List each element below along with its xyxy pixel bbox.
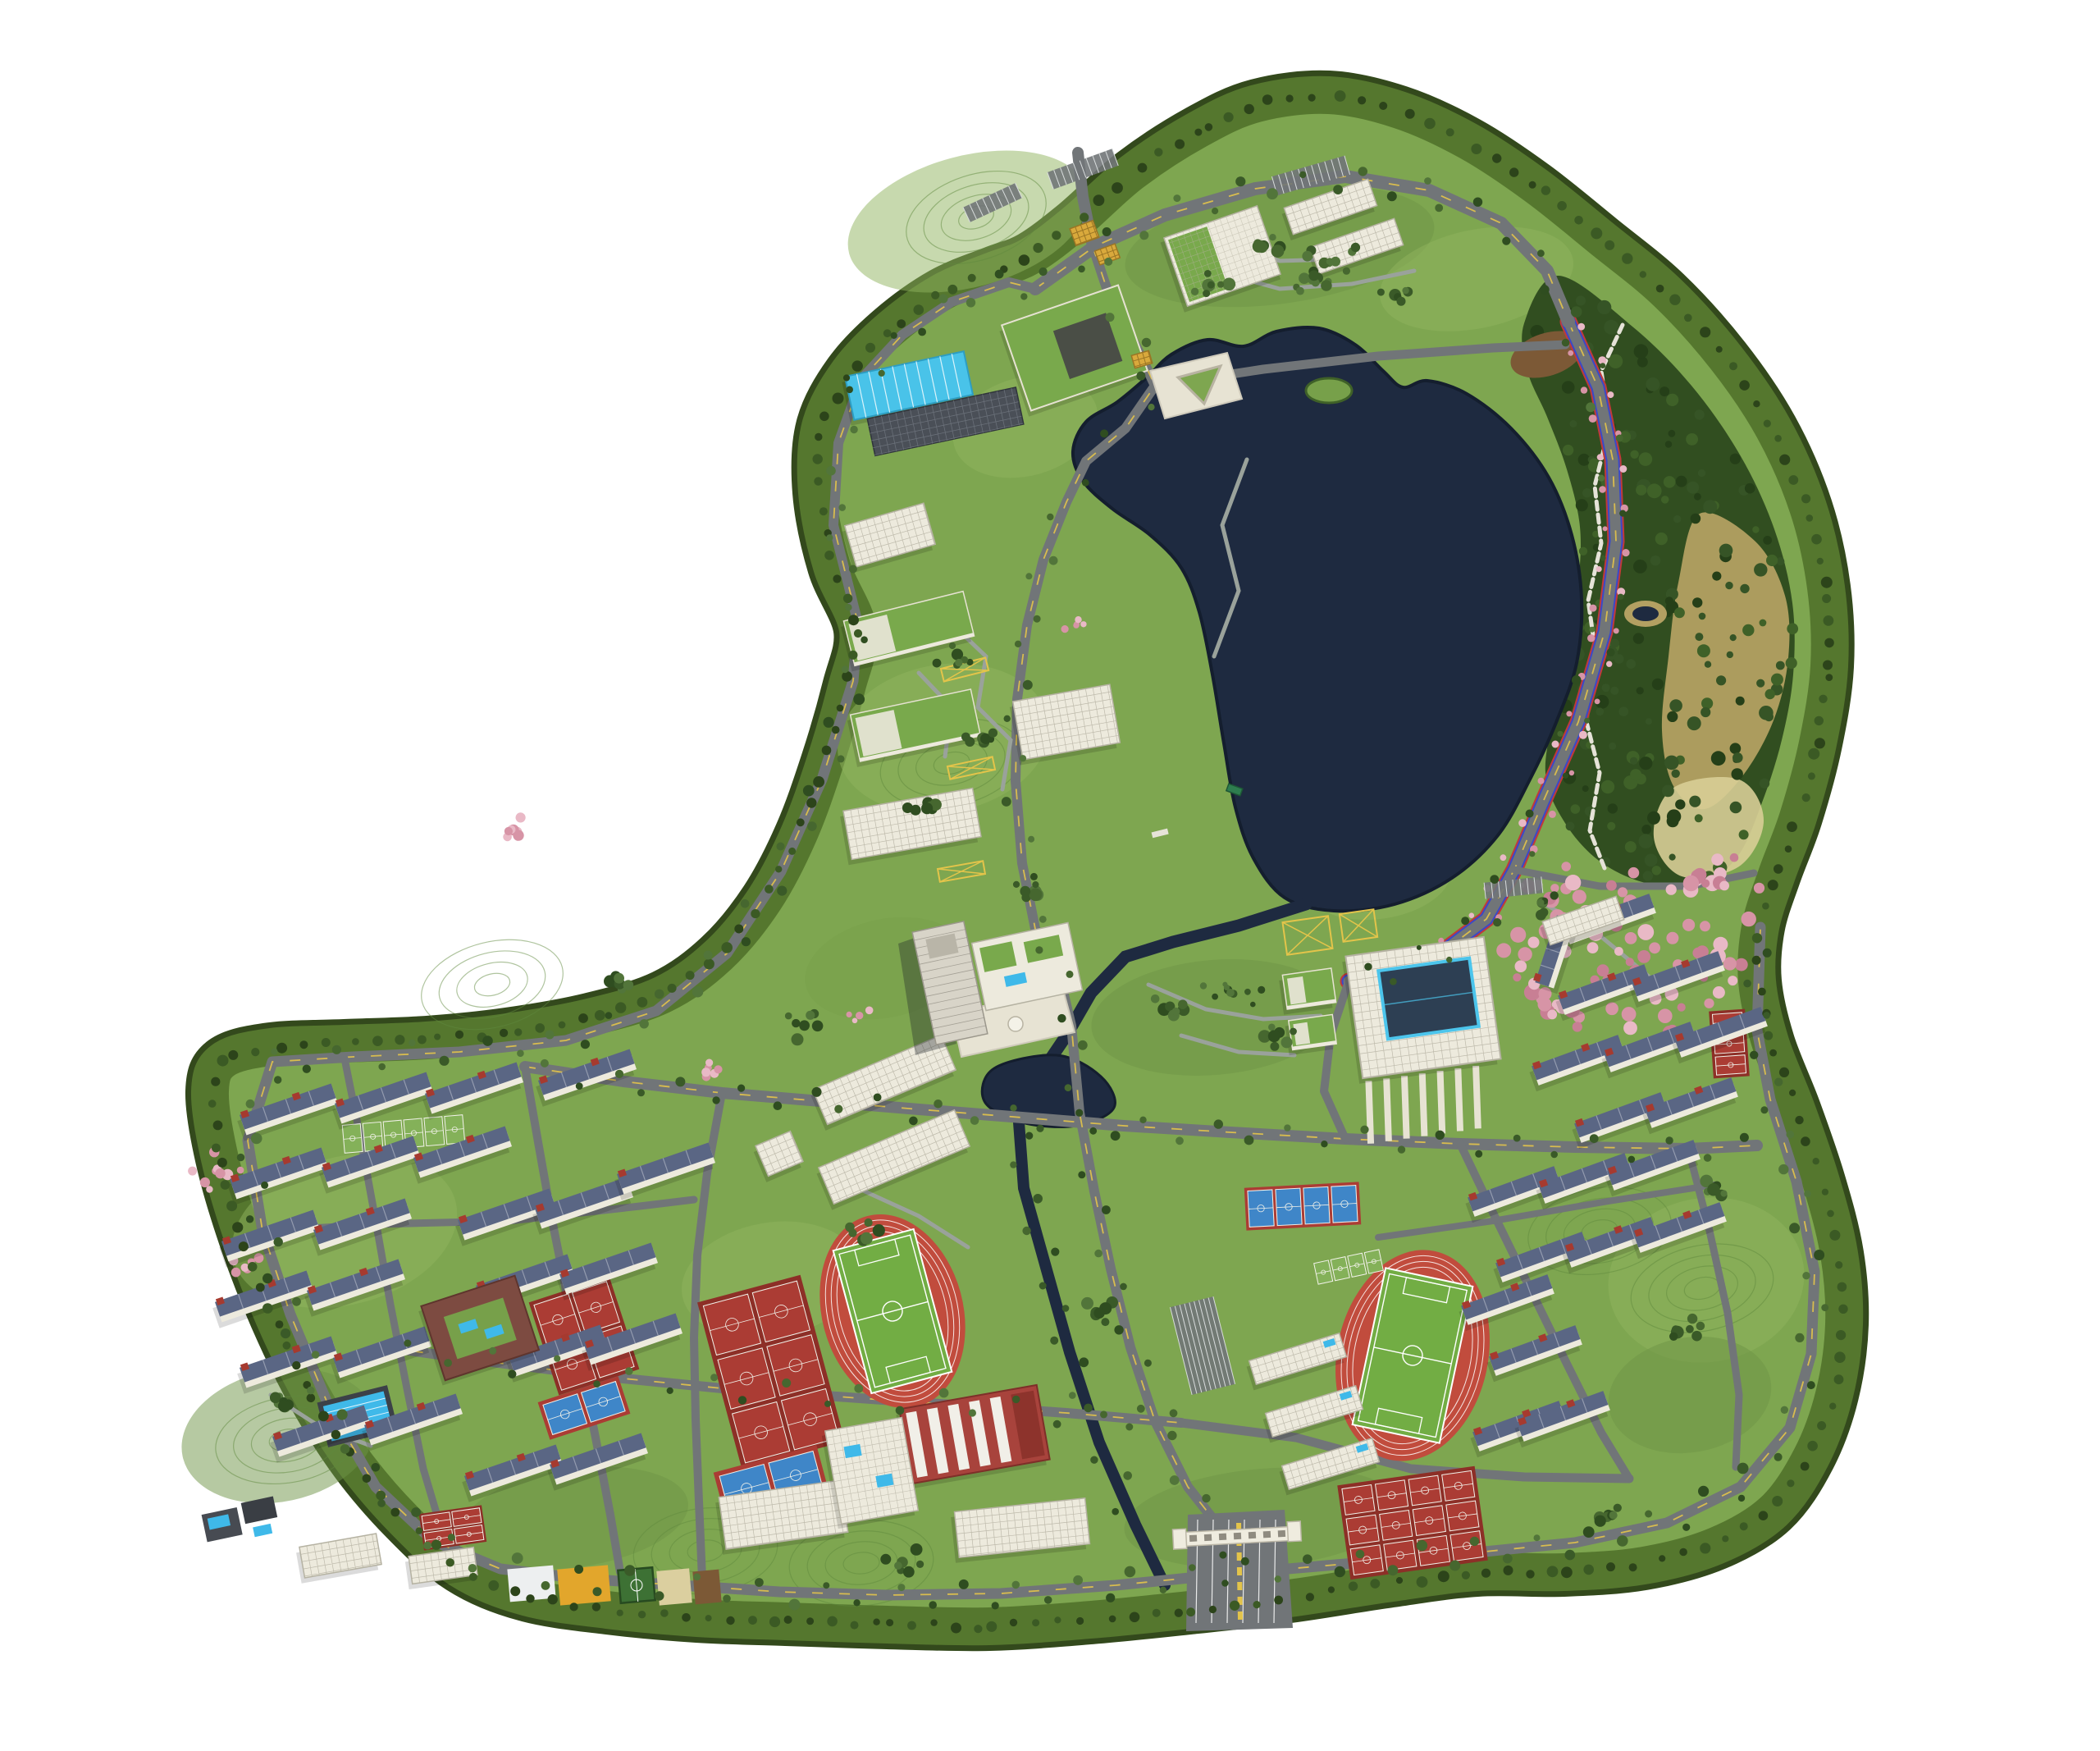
tree-icon (1669, 1333, 1678, 1341)
belt-tree-icon (1752, 956, 1761, 965)
belt-tree-icon (784, 1616, 792, 1624)
tree-icon (1173, 194, 1180, 202)
tree-icon (1258, 986, 1265, 994)
belt-tree-icon (395, 1035, 404, 1045)
cherry-tree-icon (1547, 1010, 1557, 1020)
forest-tree-icon (1711, 751, 1726, 766)
tree-icon (1032, 881, 1039, 888)
belt-tree-icon (510, 1586, 520, 1596)
forest-tree-icon (1569, 420, 1577, 427)
cherry-tree-icon (714, 1065, 722, 1073)
cherry-tree-icon (1666, 885, 1677, 895)
tree-icon (1022, 1227, 1030, 1235)
belt-tree-icon (1774, 864, 1783, 874)
basketball-courts-southeast (1337, 1466, 1487, 1580)
forest-tree-icon (1786, 657, 1797, 669)
belt-tree-icon (211, 1077, 220, 1086)
belt-tree-icon (331, 1430, 340, 1439)
tree-icon (1013, 881, 1020, 888)
belt-tree-icon (570, 1602, 578, 1611)
forest-tree-icon (1659, 386, 1669, 396)
belt-tree-icon (1244, 104, 1254, 114)
fenced-green-court (618, 1567, 655, 1603)
tree-icon (1075, 1109, 1083, 1117)
green-roof-building (1285, 1014, 1337, 1055)
belt-tree-icon (638, 1611, 646, 1618)
gate-window (1249, 1532, 1256, 1538)
belt-tree-icon (1824, 638, 1834, 648)
tree-icon (879, 370, 885, 377)
tree-icon (1235, 176, 1245, 186)
belt-tree-icon (848, 651, 857, 660)
belt-tree-icon (212, 1144, 221, 1153)
tree-icon (1740, 1133, 1749, 1142)
tree-icon (1550, 891, 1559, 899)
belt-tree-icon (1417, 1576, 1428, 1588)
belt-tree-icon (854, 629, 862, 638)
tree-icon (1203, 290, 1210, 297)
tree-icon (1687, 1314, 1697, 1324)
tree-icon (1082, 479, 1089, 487)
tree-icon (1079, 1357, 1089, 1367)
tree-icon (903, 1566, 915, 1578)
belt-tree-icon (705, 1615, 712, 1621)
tree-icon (806, 1011, 815, 1020)
tree-icon (1125, 1424, 1133, 1431)
belt-tree-icon (1838, 1305, 1847, 1314)
tree-icon (916, 1561, 924, 1568)
cherry-tree-icon (847, 1012, 852, 1017)
belt-tree-icon (873, 1619, 879, 1625)
belt-tree-icon (769, 1616, 780, 1627)
forest-tree-icon (1641, 825, 1651, 834)
forest-tree-icon (1766, 555, 1778, 566)
belt-tree-icon (217, 1158, 227, 1168)
belt-tree-icon (455, 1031, 463, 1039)
tree-icon (1364, 963, 1372, 971)
belt-tree-icon (1509, 167, 1518, 176)
tree-icon (1343, 267, 1350, 275)
belt-tree-icon (833, 393, 844, 405)
tree-icon (704, 951, 713, 960)
belt-tree-icon (1112, 182, 1123, 194)
forest-tree-icon (1589, 458, 1599, 468)
belt-tree-icon (1700, 1543, 1710, 1553)
tree-icon (1212, 208, 1218, 214)
tree-icon (1100, 429, 1108, 437)
tree-icon (1221, 1580, 1228, 1586)
tree-icon (1051, 1248, 1059, 1256)
tree-icon (1563, 773, 1568, 779)
belt-tree-icon (1834, 1351, 1846, 1363)
forest-tree-icon (1725, 582, 1732, 589)
tree-icon (1033, 1194, 1043, 1204)
tree-icon (1424, 177, 1431, 185)
tree-icon (959, 1580, 969, 1589)
belt-tree-icon (843, 374, 850, 381)
tree-icon (411, 1507, 421, 1517)
tree-icon (1025, 1132, 1033, 1140)
cherry-tree-icon (1713, 937, 1728, 952)
belt-tree-icon (446, 1558, 454, 1566)
belt-tree-icon (1827, 1210, 1834, 1218)
tree-icon (274, 1076, 281, 1083)
cherry-tree-icon (856, 1012, 863, 1019)
tree-icon (1763, 949, 1772, 958)
belt-tree-icon (1054, 1616, 1061, 1623)
belt-tree-icon (1762, 903, 1769, 910)
tree-icon (1057, 1014, 1066, 1022)
forest-tree-icon (1625, 841, 1637, 853)
tree-icon (1244, 989, 1251, 995)
belt-tree-icon (1753, 400, 1760, 407)
forest-tree-icon (1562, 381, 1575, 394)
belt-tree-icon (806, 798, 816, 807)
tree-icon (1402, 287, 1408, 294)
belt-tree-icon (514, 1028, 522, 1036)
tree-icon (581, 1040, 590, 1049)
belt-tree-icon (765, 885, 774, 894)
tree-icon (1435, 204, 1443, 213)
belt-tree-icon (1684, 314, 1692, 322)
tree-icon (1170, 1409, 1178, 1417)
belt-tree-icon (842, 671, 852, 682)
tree-icon (1572, 675, 1582, 685)
tree-icon (880, 1554, 891, 1565)
tree-icon (1617, 1535, 1628, 1547)
belt-tree-icon (1010, 1619, 1017, 1626)
belt-tree-icon (1561, 1566, 1573, 1578)
belt-tree-icon (1093, 194, 1105, 206)
forest-tree-icon (1698, 469, 1705, 477)
belt-tree-icon (352, 1038, 359, 1045)
tree-icon (955, 659, 962, 666)
gate-window (1219, 1534, 1226, 1540)
belt-tree-icon (1656, 285, 1664, 293)
forest-tree-icon (1639, 452, 1653, 466)
forest-tree-icon (1571, 804, 1581, 814)
gate-window (1234, 1533, 1241, 1539)
belt-tree-icon (1823, 661, 1833, 670)
forest-tree-icon (1643, 871, 1653, 880)
tree-icon (1645, 1511, 1652, 1518)
tree-icon (1600, 363, 1605, 368)
belt-tree-icon (1052, 231, 1061, 240)
contour-line (452, 955, 532, 1014)
tree-icon (1390, 978, 1397, 985)
tree-icon (789, 1599, 801, 1611)
cherry-tree-icon (1622, 1007, 1637, 1022)
belt-tree-icon (1032, 1619, 1039, 1626)
forest-tree-icon (1630, 769, 1641, 780)
belt-tree-icon (1759, 1511, 1769, 1520)
tree-icon (312, 1351, 320, 1359)
tree-icon (1387, 1565, 1398, 1575)
forest-tree-icon (1607, 822, 1615, 830)
forest-tree-icon (1618, 706, 1628, 716)
gate-window (1263, 1531, 1271, 1538)
forest-tree-icon (1691, 514, 1701, 524)
cherry-tree-icon (504, 827, 513, 835)
belt-tree-icon (819, 412, 829, 422)
cherry-tree-icon (1742, 912, 1756, 926)
tree-icon (1047, 514, 1053, 520)
forest-tree-icon (1687, 716, 1701, 730)
forest-tree-icon (1740, 584, 1749, 593)
belt-tree-icon (1541, 185, 1550, 194)
belt-tree-icon (814, 477, 822, 485)
forest-tree-icon (1730, 802, 1742, 814)
tree-icon (1093, 1308, 1104, 1319)
tree-icon (1296, 287, 1304, 295)
tree-icon (1565, 1550, 1576, 1561)
tree-icon (1020, 293, 1027, 299)
tree-icon (777, 843, 785, 851)
cherry-tree-icon (1587, 942, 1599, 953)
forest-tree-icon (1610, 687, 1618, 695)
tree-icon (1120, 1283, 1127, 1291)
tree-icon (692, 986, 704, 998)
cherry-tree-icon (188, 1167, 197, 1176)
cherry-tree-icon (1666, 932, 1678, 944)
belt-tree-icon (1153, 1609, 1161, 1617)
tree-icon (1100, 1410, 1107, 1418)
tree-icon (799, 1020, 810, 1031)
tree-icon (782, 1378, 791, 1388)
belt-tree-icon (1801, 1462, 1810, 1471)
tree-icon (1136, 372, 1145, 381)
belt-tree-icon (1740, 1522, 1748, 1530)
campus-master-plan (0, 0, 2100, 1751)
belt-tree-icon (660, 1609, 669, 1617)
tree-icon (824, 1401, 831, 1407)
tree-icon (1789, 1223, 1800, 1233)
tree-icon (1102, 1205, 1111, 1214)
tree-icon (838, 755, 845, 762)
tree-icon (929, 1601, 937, 1609)
tree-icon (1698, 1486, 1709, 1497)
tree-icon (1142, 338, 1151, 347)
belt-tree-icon (1438, 1570, 1449, 1582)
belt-tree-icon (1308, 94, 1316, 102)
belt-tree-icon (1175, 139, 1185, 149)
belt-tree-icon (251, 1048, 259, 1056)
tree-icon (785, 1013, 792, 1020)
tree-icon (710, 1374, 718, 1381)
belt-tree-icon (1526, 1570, 1534, 1578)
tree-icon (939, 295, 948, 304)
tree-icon (1513, 1135, 1521, 1142)
tree-icon (340, 1444, 350, 1454)
tree-icon (755, 1578, 764, 1587)
forest-tree-icon (1633, 560, 1647, 574)
belt-tree-icon (1779, 1068, 1789, 1077)
tree-icon (911, 1543, 923, 1556)
belt-tree-icon (1557, 201, 1567, 211)
forest-tree-icon (1601, 780, 1614, 793)
belt-tree-icon (208, 1100, 217, 1108)
cherry-tree-icon (1500, 854, 1507, 861)
tree-icon (1781, 1406, 1788, 1414)
cherry-tree-icon (1719, 881, 1729, 891)
forest-tree-icon (1712, 572, 1721, 581)
forest-tree-icon (1636, 485, 1646, 496)
tree-icon (624, 1565, 635, 1575)
tree-icon (873, 1224, 885, 1237)
belt-tree-icon (1817, 1421, 1826, 1430)
forest-tree-icon (1637, 687, 1644, 694)
belt-tree-icon (578, 1013, 588, 1023)
academic-building (295, 1534, 382, 1584)
cherry-tree-icon (1713, 986, 1725, 999)
tree-icon (1212, 994, 1218, 1000)
belt-tree-icon (500, 1029, 508, 1037)
tree-icon (1571, 306, 1582, 318)
tree-icon (1257, 242, 1268, 254)
belt-tree-icon (1764, 1031, 1773, 1040)
tree-icon (517, 1049, 524, 1057)
forest-tree-icon (1652, 679, 1664, 690)
tree-icon (237, 1154, 244, 1161)
belt-tree-icon (1591, 227, 1602, 239)
tree-icon (774, 1101, 783, 1110)
tree-icon (655, 990, 664, 999)
tree-icon (812, 1021, 824, 1032)
forest-tree-icon (1760, 779, 1769, 789)
tree-icon (1268, 1030, 1281, 1042)
cherry-tree-icon (1599, 486, 1606, 493)
belt-tree-icon (1154, 148, 1162, 156)
belt-tree-icon (1807, 1441, 1818, 1452)
belt-tree-icon (248, 1262, 258, 1272)
forest-tree-icon (1630, 757, 1637, 765)
belt-tree-icon (1789, 1090, 1796, 1096)
tree-icon (853, 693, 865, 705)
tree-icon (1029, 889, 1043, 902)
belt-tree-icon (668, 984, 677, 993)
belt-tree-icon (1424, 118, 1436, 130)
tree-icon (1270, 1042, 1279, 1051)
cherry-tree-icon (1595, 699, 1600, 705)
belt-tree-icon (1817, 558, 1824, 565)
tree-icon (1691, 1331, 1702, 1342)
belt-tree-icon (797, 818, 805, 826)
belt-tree-icon (1205, 123, 1213, 131)
tree-icon (512, 1552, 523, 1564)
belt-tree-icon (1130, 1612, 1140, 1623)
tree-icon (1590, 1134, 1599, 1143)
tree-icon (615, 1070, 623, 1078)
tree-icon (1750, 1051, 1758, 1059)
belt-tree-icon (968, 274, 976, 282)
tree-icon (896, 1406, 905, 1415)
forest-tree-icon (1661, 496, 1669, 504)
forest-tree-icon (1732, 752, 1743, 763)
belt-tree-icon (1186, 1607, 1195, 1616)
belt-tree-icon (1335, 90, 1346, 102)
belt-tree-icon (1787, 821, 1797, 832)
belt-tree-icon (1446, 128, 1454, 136)
tree-icon (281, 1328, 290, 1338)
belt-tree-icon (852, 360, 863, 371)
tree-icon (1672, 1325, 1680, 1333)
cherry-tree-icon (1573, 1022, 1582, 1031)
tree-icon (404, 1340, 411, 1347)
tree-icon (861, 636, 868, 643)
cherry-tree-icon (852, 1018, 858, 1024)
tree-icon (1125, 1566, 1136, 1578)
tree-icon (546, 1031, 555, 1040)
forest-tree-icon (1687, 482, 1699, 494)
tree-icon (1614, 1504, 1622, 1512)
cherry-tree-icon (1550, 884, 1559, 892)
tree-icon (262, 1273, 272, 1283)
tree-icon (574, 1565, 583, 1574)
belt-tree-icon (276, 1043, 287, 1054)
belt-tree-icon (1358, 96, 1366, 104)
tree-icon (1269, 234, 1276, 240)
forest-tree-icon (1742, 624, 1754, 636)
forest-tree-icon (1695, 814, 1703, 822)
tree-icon (1387, 191, 1397, 201)
belt-tree-icon (1224, 112, 1234, 122)
tree-icon (834, 1105, 842, 1113)
tree-icon (372, 1463, 381, 1472)
belt-tree-icon (986, 1621, 997, 1632)
tree-icon (1321, 280, 1332, 291)
belt-tree-icon (1396, 1577, 1403, 1584)
cherry-tree-icon (1649, 942, 1660, 953)
belt-tree-icon (734, 925, 743, 934)
gate-window (1204, 1534, 1212, 1541)
belt-tree-icon (1729, 362, 1737, 370)
green-roof-building (1278, 968, 1336, 1015)
tree-icon (1020, 886, 1030, 897)
forest-tree-icon (1650, 555, 1661, 566)
belt-tree-icon (1659, 1555, 1665, 1561)
tree-icon (1036, 1125, 1043, 1132)
tree-icon (278, 1400, 290, 1412)
cherry-tree-icon (516, 812, 526, 822)
tree-icon (637, 1089, 645, 1096)
tree-icon (332, 1045, 341, 1054)
belt-tree-icon (226, 1200, 237, 1211)
forest-tree-icon (1695, 409, 1705, 419)
tree-icon (738, 1396, 746, 1404)
tree-icon (1028, 836, 1034, 843)
belt-tree-icon (1802, 793, 1810, 802)
tree-icon (1191, 288, 1198, 295)
tree-icon (1704, 1154, 1712, 1162)
belt-tree-icon (1629, 1563, 1637, 1571)
tree-icon (1778, 1164, 1788, 1174)
belt-tree-icon (686, 971, 695, 980)
tree-icon (1217, 281, 1224, 288)
belt-tree-icon (1379, 102, 1387, 110)
tree-icon (1178, 999, 1188, 1009)
tree-icon (1089, 1127, 1097, 1135)
cherry-tree-icon (1590, 605, 1597, 612)
tree-icon (909, 1117, 918, 1126)
tree-icon (605, 1012, 613, 1019)
belt-tree-icon (1806, 514, 1814, 522)
cherry-tree-icon (215, 1168, 225, 1178)
belt-tree-icon (217, 1055, 229, 1067)
belt-tree-icon (1679, 1548, 1687, 1557)
tree-icon (838, 504, 846, 511)
forest-tree-icon (1754, 563, 1767, 576)
cherry-tree-icon (1566, 711, 1572, 716)
